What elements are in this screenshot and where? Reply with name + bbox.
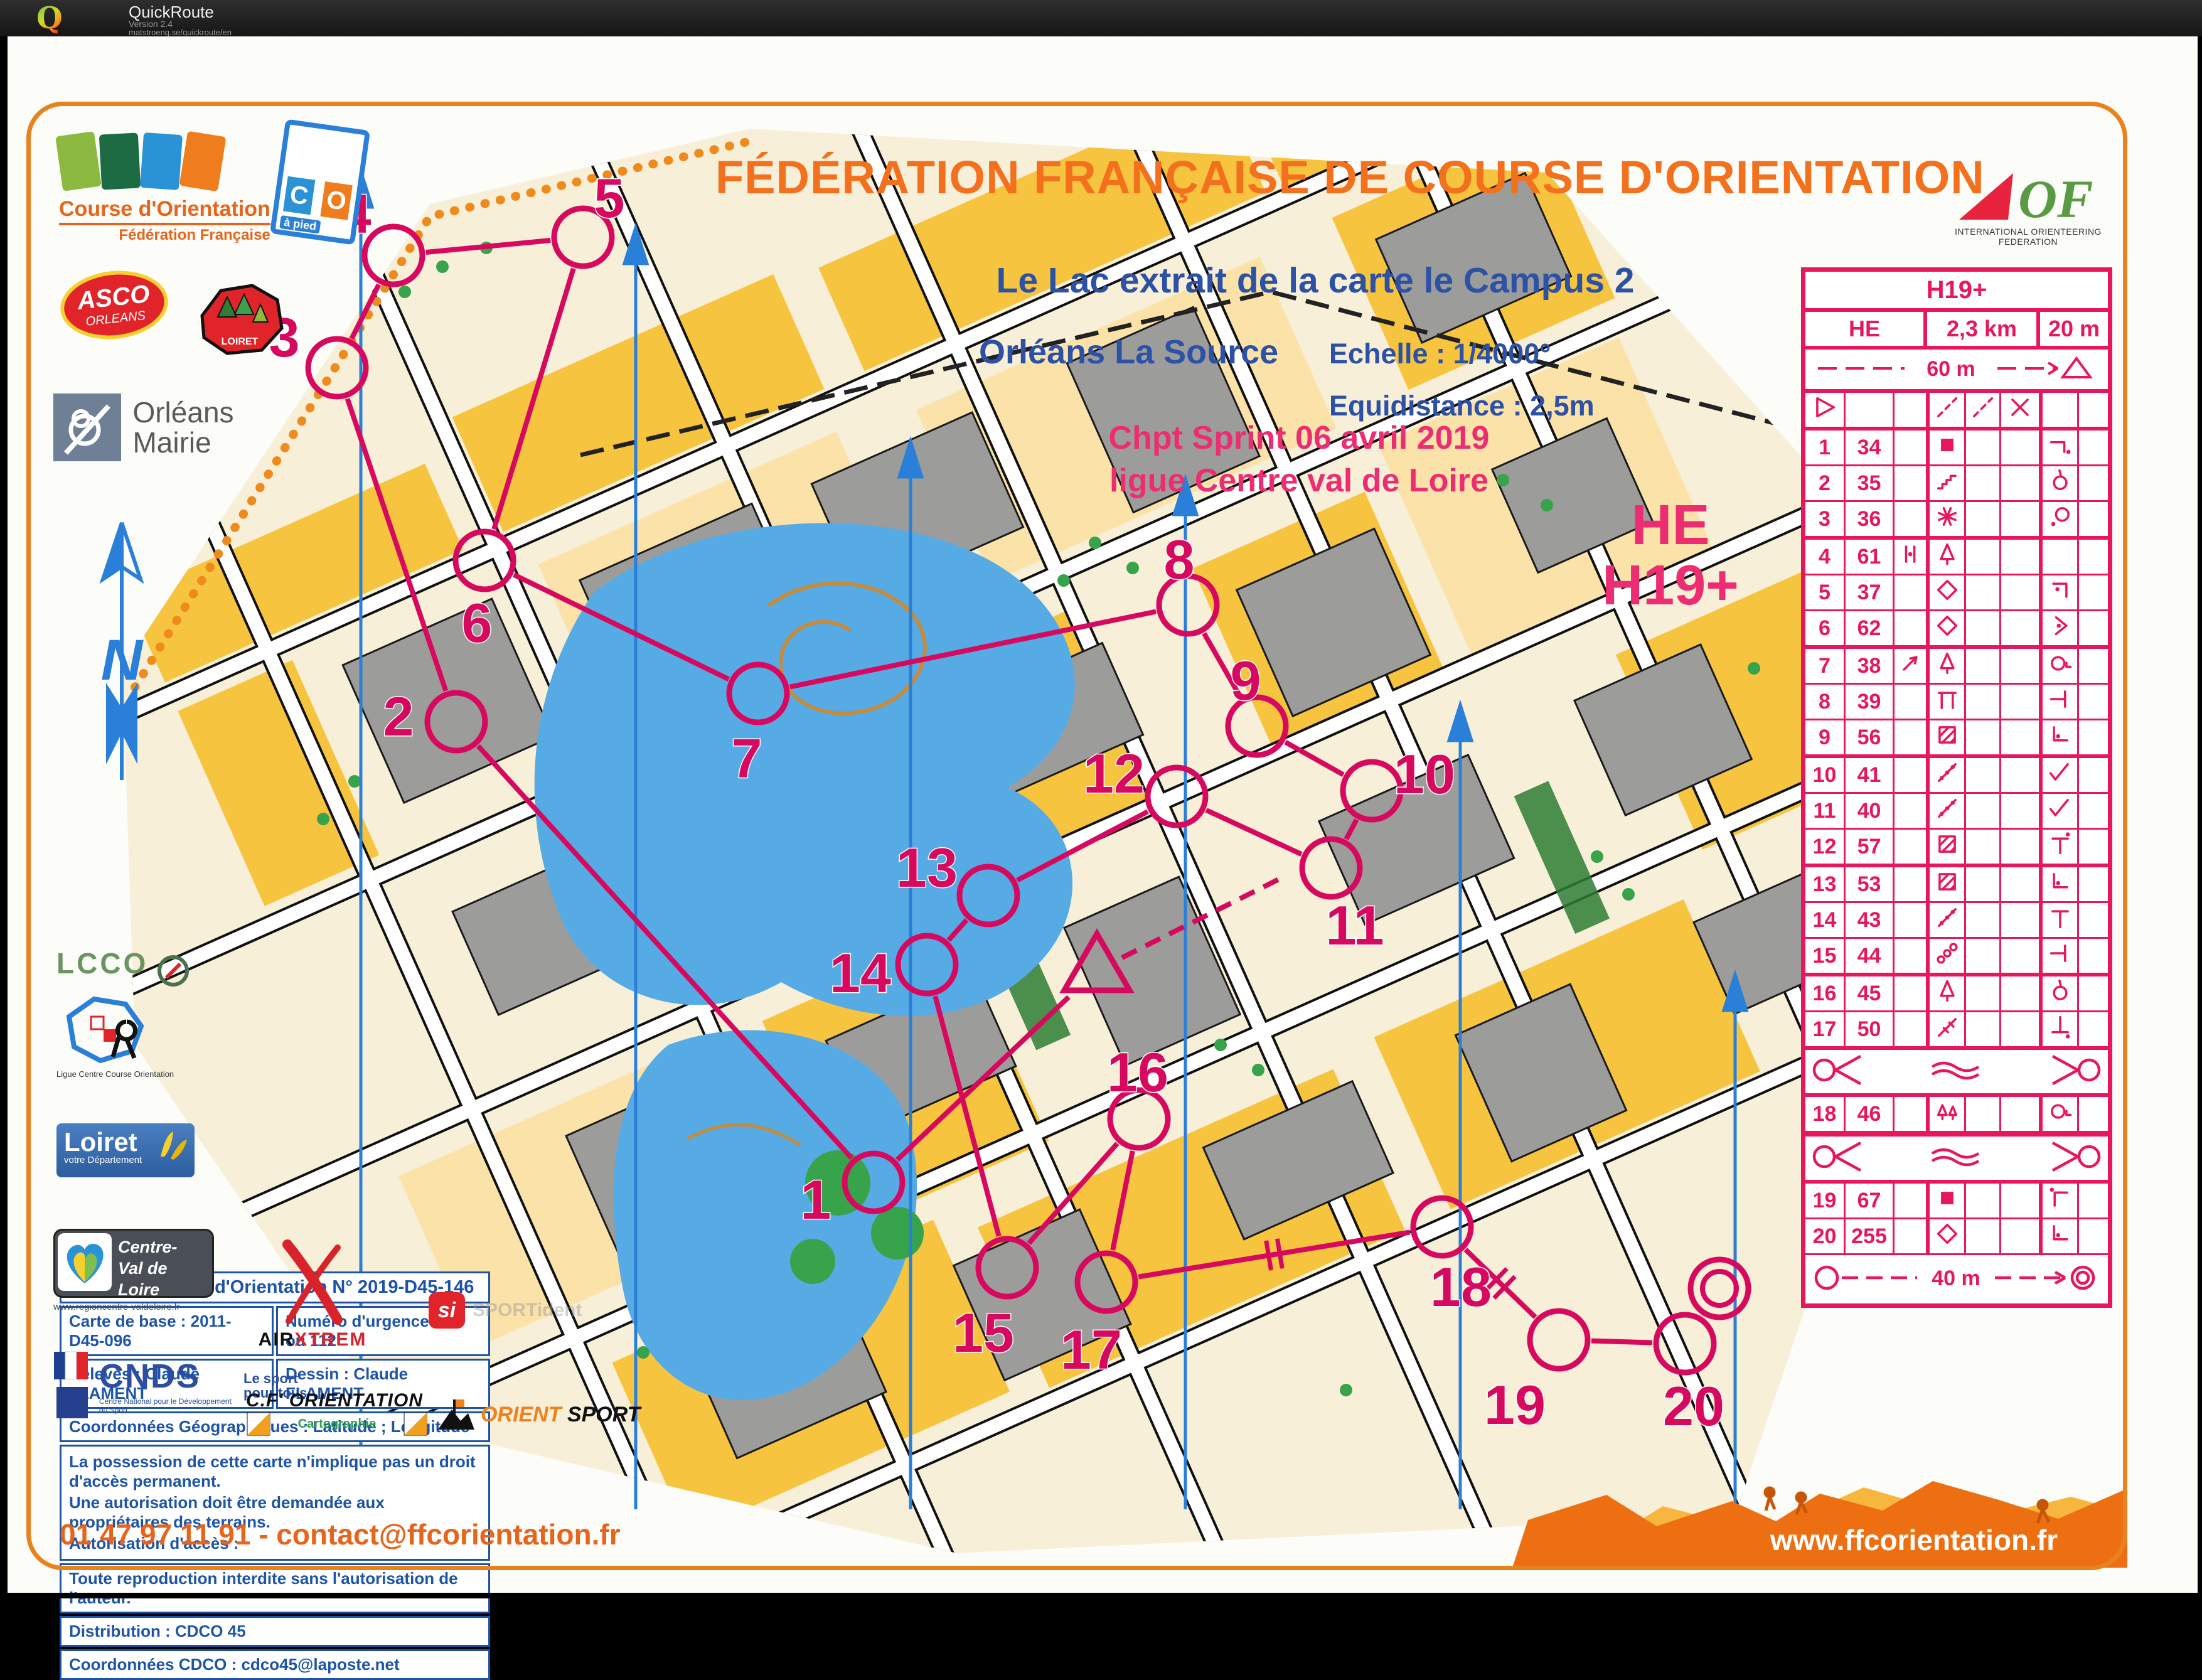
quickroute-window: { "titlebar":{"app":"QuickRoute","logo":… [0, 0, 2202, 1598]
app-url: matstroeng.se/quickroute/en [129, 28, 232, 37]
app-titlebar: Q QuickRoute Version 2.4 matstroeng.se/q… [0, 0, 2202, 36]
window-edge-bottom [0, 1593, 2202, 1598]
info-distribution: Distribution : CDCO 45 [60, 1616, 490, 1647]
info-copyright: Toute reproduction interdite sans l'auto… [60, 1563, 490, 1613]
info-contact: Coordonnées CDCO : cdco45@laposte.net [60, 1649, 490, 1680]
map-frame-border [26, 102, 2127, 1570]
window-edge-left [0, 36, 8, 1598]
window-edge-right [2198, 36, 2202, 1598]
map-document: 1234567891011121314151617181920 FÉDÉRATI… [8, 36, 2198, 1593]
quickroute-logo-icon: Q [36, 3, 63, 34]
